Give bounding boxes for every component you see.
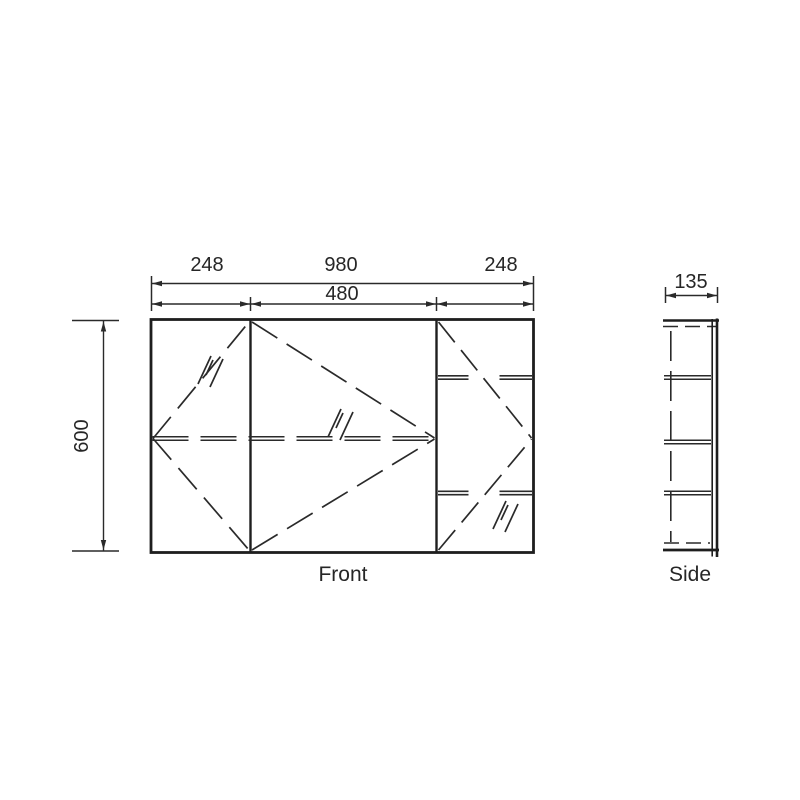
side-view-caption: Side	[669, 563, 711, 586]
technical-drawing-page: 248 980 248 480 600	[0, 0, 800, 800]
dim-label-248-left: 248	[190, 254, 223, 276]
mid-shelf-dashed-line	[153, 437, 434, 440]
side-dimensions: 135	[666, 271, 718, 303]
middle-door-swing-lines	[252, 322, 435, 550]
mirror-hatch-left-panel	[198, 356, 223, 387]
dim-label-248-right: 248	[484, 254, 517, 276]
mirror-hatch-middle-panel	[328, 409, 353, 440]
front-view	[151, 320, 534, 553]
side-view	[663, 319, 719, 558]
right-panel-shelves	[438, 376, 532, 495]
right-door-swing-lines	[439, 322, 532, 550]
cabinet-dimension-diagram: 248 980 248 480 600	[0, 0, 800, 800]
dim-label-135: 135	[674, 271, 707, 293]
left-door-swing-lines	[153, 322, 249, 550]
front-view-caption: Front	[318, 563, 367, 586]
front-dimensions: 248 980 248 480 600	[71, 254, 534, 551]
front-panel-dividers	[251, 320, 437, 553]
dim-label-600: 600	[71, 419, 93, 452]
mirror-hatch-right-panel	[493, 501, 518, 532]
side-door-panel	[712, 319, 717, 558]
dim-label-480: 480	[325, 283, 358, 305]
dim-label-980: 980	[324, 254, 357, 276]
